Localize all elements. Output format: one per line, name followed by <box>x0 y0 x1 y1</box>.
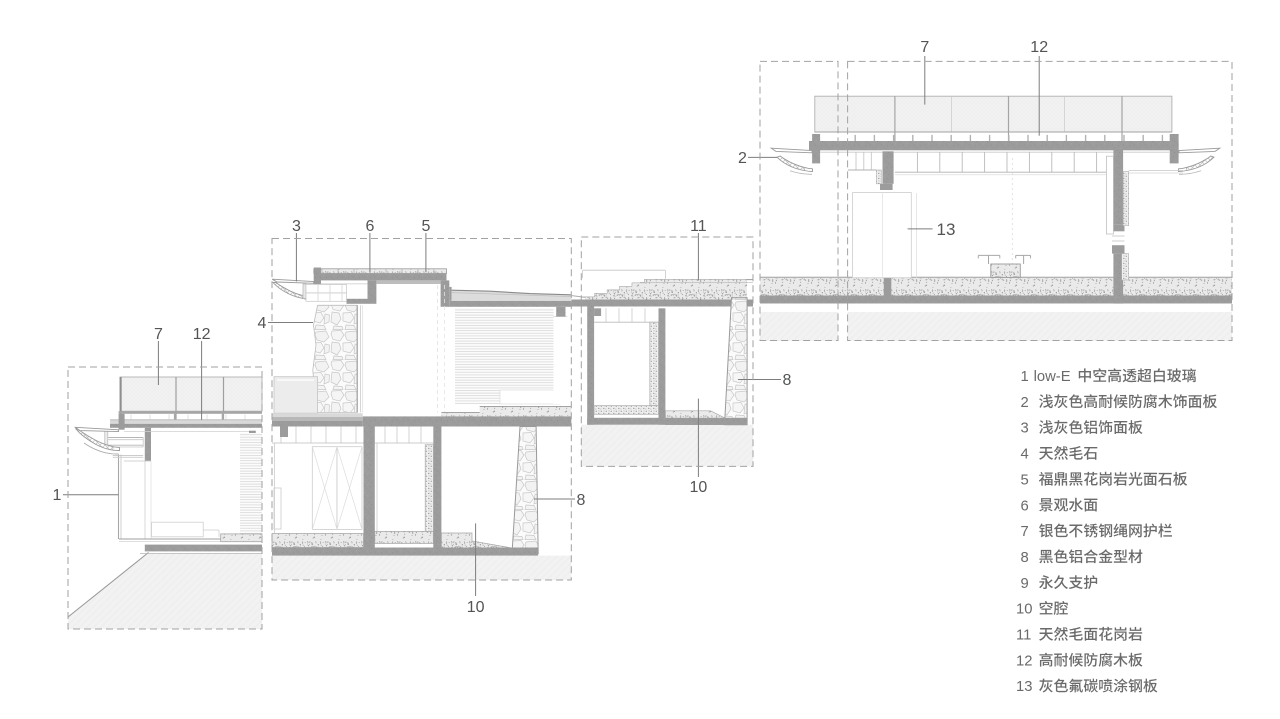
svg-text:13: 13 <box>1016 679 1032 695</box>
svg-text:2: 2 <box>738 150 747 167</box>
svg-text:1: 1 <box>53 487 62 504</box>
svg-text:low-E: low-E <box>1034 369 1071 385</box>
svg-text:6: 6 <box>1021 498 1029 514</box>
svg-text:11: 11 <box>690 218 707 235</box>
svg-text:4: 4 <box>258 315 267 332</box>
svg-text:8: 8 <box>783 372 792 389</box>
svg-text:12: 12 <box>1016 653 1032 669</box>
svg-text:9: 9 <box>1021 576 1029 592</box>
svg-text:8: 8 <box>1021 550 1029 566</box>
svg-text:13: 13 <box>937 220 956 239</box>
svg-text:7: 7 <box>920 39 929 56</box>
svg-text:6: 6 <box>365 218 374 235</box>
svg-text:2: 2 <box>1021 395 1029 411</box>
svg-text:5: 5 <box>1021 472 1029 488</box>
svg-text:3: 3 <box>292 218 301 235</box>
svg-text:11: 11 <box>1016 628 1031 644</box>
svg-text:12: 12 <box>193 326 211 343</box>
svg-text:4: 4 <box>1021 447 1029 463</box>
svg-text:7: 7 <box>1021 524 1029 540</box>
svg-text:3: 3 <box>1021 421 1029 437</box>
svg-text:7: 7 <box>154 326 163 343</box>
svg-text:1: 1 <box>1021 369 1029 385</box>
svg-text:10: 10 <box>690 479 708 496</box>
svg-text:5: 5 <box>421 218 430 235</box>
svg-text:8: 8 <box>577 492 586 509</box>
svg-text:10: 10 <box>1016 602 1032 618</box>
svg-text:10: 10 <box>467 599 485 616</box>
svg-text:12: 12 <box>1030 39 1048 56</box>
